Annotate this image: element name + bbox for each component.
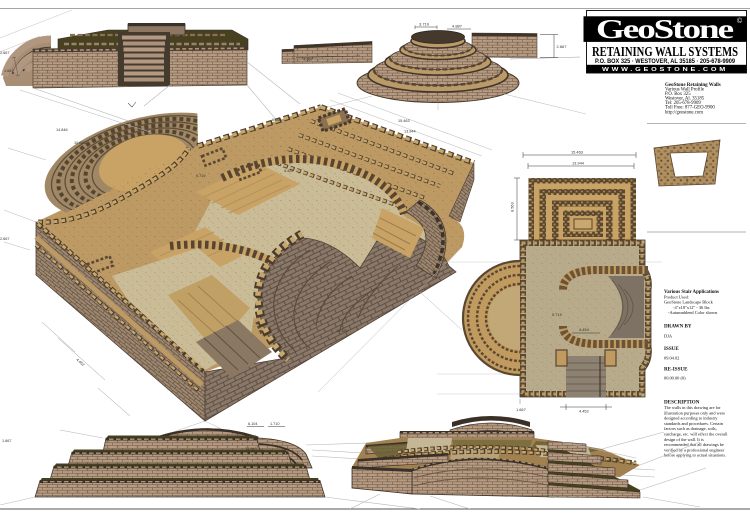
svg-text:WWW.GEOSTONE.COM: WWW.GEOSTONE.COM — [602, 67, 728, 73]
svg-text:DRAWN BY: DRAWN BY — [664, 324, 692, 330]
svg-text:6.665: 6.665 — [272, 118, 282, 122]
svg-text:The walls in this drawing are: The walls in this drawing are for — [664, 405, 721, 410]
svg-text:14.846 Alt.: 14.846 Alt. — [602, 459, 620, 463]
svg-text:8.563: 8.563 — [510, 202, 515, 212]
svg-text:15.463: 15.463 — [398, 119, 410, 123]
svg-text:verified by a professional eng: verified by a professional engineer — [664, 447, 725, 452]
svg-text:5.719: 5.719 — [552, 312, 562, 317]
svg-text:10.650: 10.650 — [74, 141, 86, 145]
svg-text:3.719: 3.719 — [419, 22, 430, 27]
svg-text:http://geostone.com: http://geostone.com — [665, 110, 703, 115]
svg-text:standards and procedures. Cer: standards and procedures. Certain — [664, 421, 724, 426]
svg-text:-Autumnblend Color shown: -Autumnblend Color shown — [668, 310, 718, 315]
svg-text:5.719: 5.719 — [196, 174, 206, 178]
svg-text:2.667: 2.667 — [0, 237, 10, 241]
svg-text:13.944: 13.944 — [404, 130, 416, 134]
svg-text:1.710: 1.710 — [270, 422, 280, 426]
svg-text:14.846: 14.846 — [56, 128, 68, 132]
svg-text:4.454: 4.454 — [284, 169, 294, 173]
svg-text:ISSUE: ISSUE — [664, 346, 679, 352]
svg-text:09.04.02: 09.04.02 — [664, 356, 679, 361]
svg-text:2.667: 2.667 — [557, 44, 568, 49]
svg-text:1.667: 1.667 — [4, 69, 14, 73]
svg-text:©: © — [737, 17, 743, 25]
svg-text:13.325: 13.325 — [336, 329, 348, 333]
svg-text:14.846: 14.846 — [245, 447, 257, 451]
svg-text:1.667: 1.667 — [516, 407, 526, 412]
svg-text:2.667: 2.667 — [0, 51, 10, 55]
svg-text:4.452: 4.452 — [579, 409, 589, 414]
svg-text:15.463: 15.463 — [571, 150, 583, 155]
svg-text:DJA: DJA — [664, 334, 673, 339]
svg-text:design of the wall. It is: design of the wall. It is — [664, 437, 704, 442]
svg-text:13.944: 13.944 — [572, 161, 585, 166]
svg-text:00.00.00 (0): 00.00.00 (0) — [664, 376, 686, 381]
svg-text:4.887: 4.887 — [452, 24, 463, 29]
svg-text:before applying to actual situ: before applying to actual situations. — [664, 453, 726, 458]
svg-text:RE-ISSUE: RE-ISSUE — [664, 367, 688, 373]
svg-text:4.367: 4.367 — [303, 57, 314, 62]
svg-text:6.104: 6.104 — [248, 422, 258, 426]
svg-text:GeoStone: GeoStone — [596, 14, 734, 44]
svg-text:designed according to industry: designed according to industry — [664, 416, 718, 421]
svg-text:4.454: 4.454 — [579, 327, 590, 332]
svg-text:1.667: 1.667 — [2, 439, 12, 443]
svg-text:P.O. BOX 325 · WESTOVER, AL 35: P.O. BOX 325 · WESTOVER, AL 35185 · 205-… — [595, 58, 735, 65]
svg-text:GeoStone Landscape Block: GeoStone Landscape Block — [664, 300, 714, 305]
svg-text:illustration purposes only and: illustration purposes only and were — [664, 410, 725, 415]
